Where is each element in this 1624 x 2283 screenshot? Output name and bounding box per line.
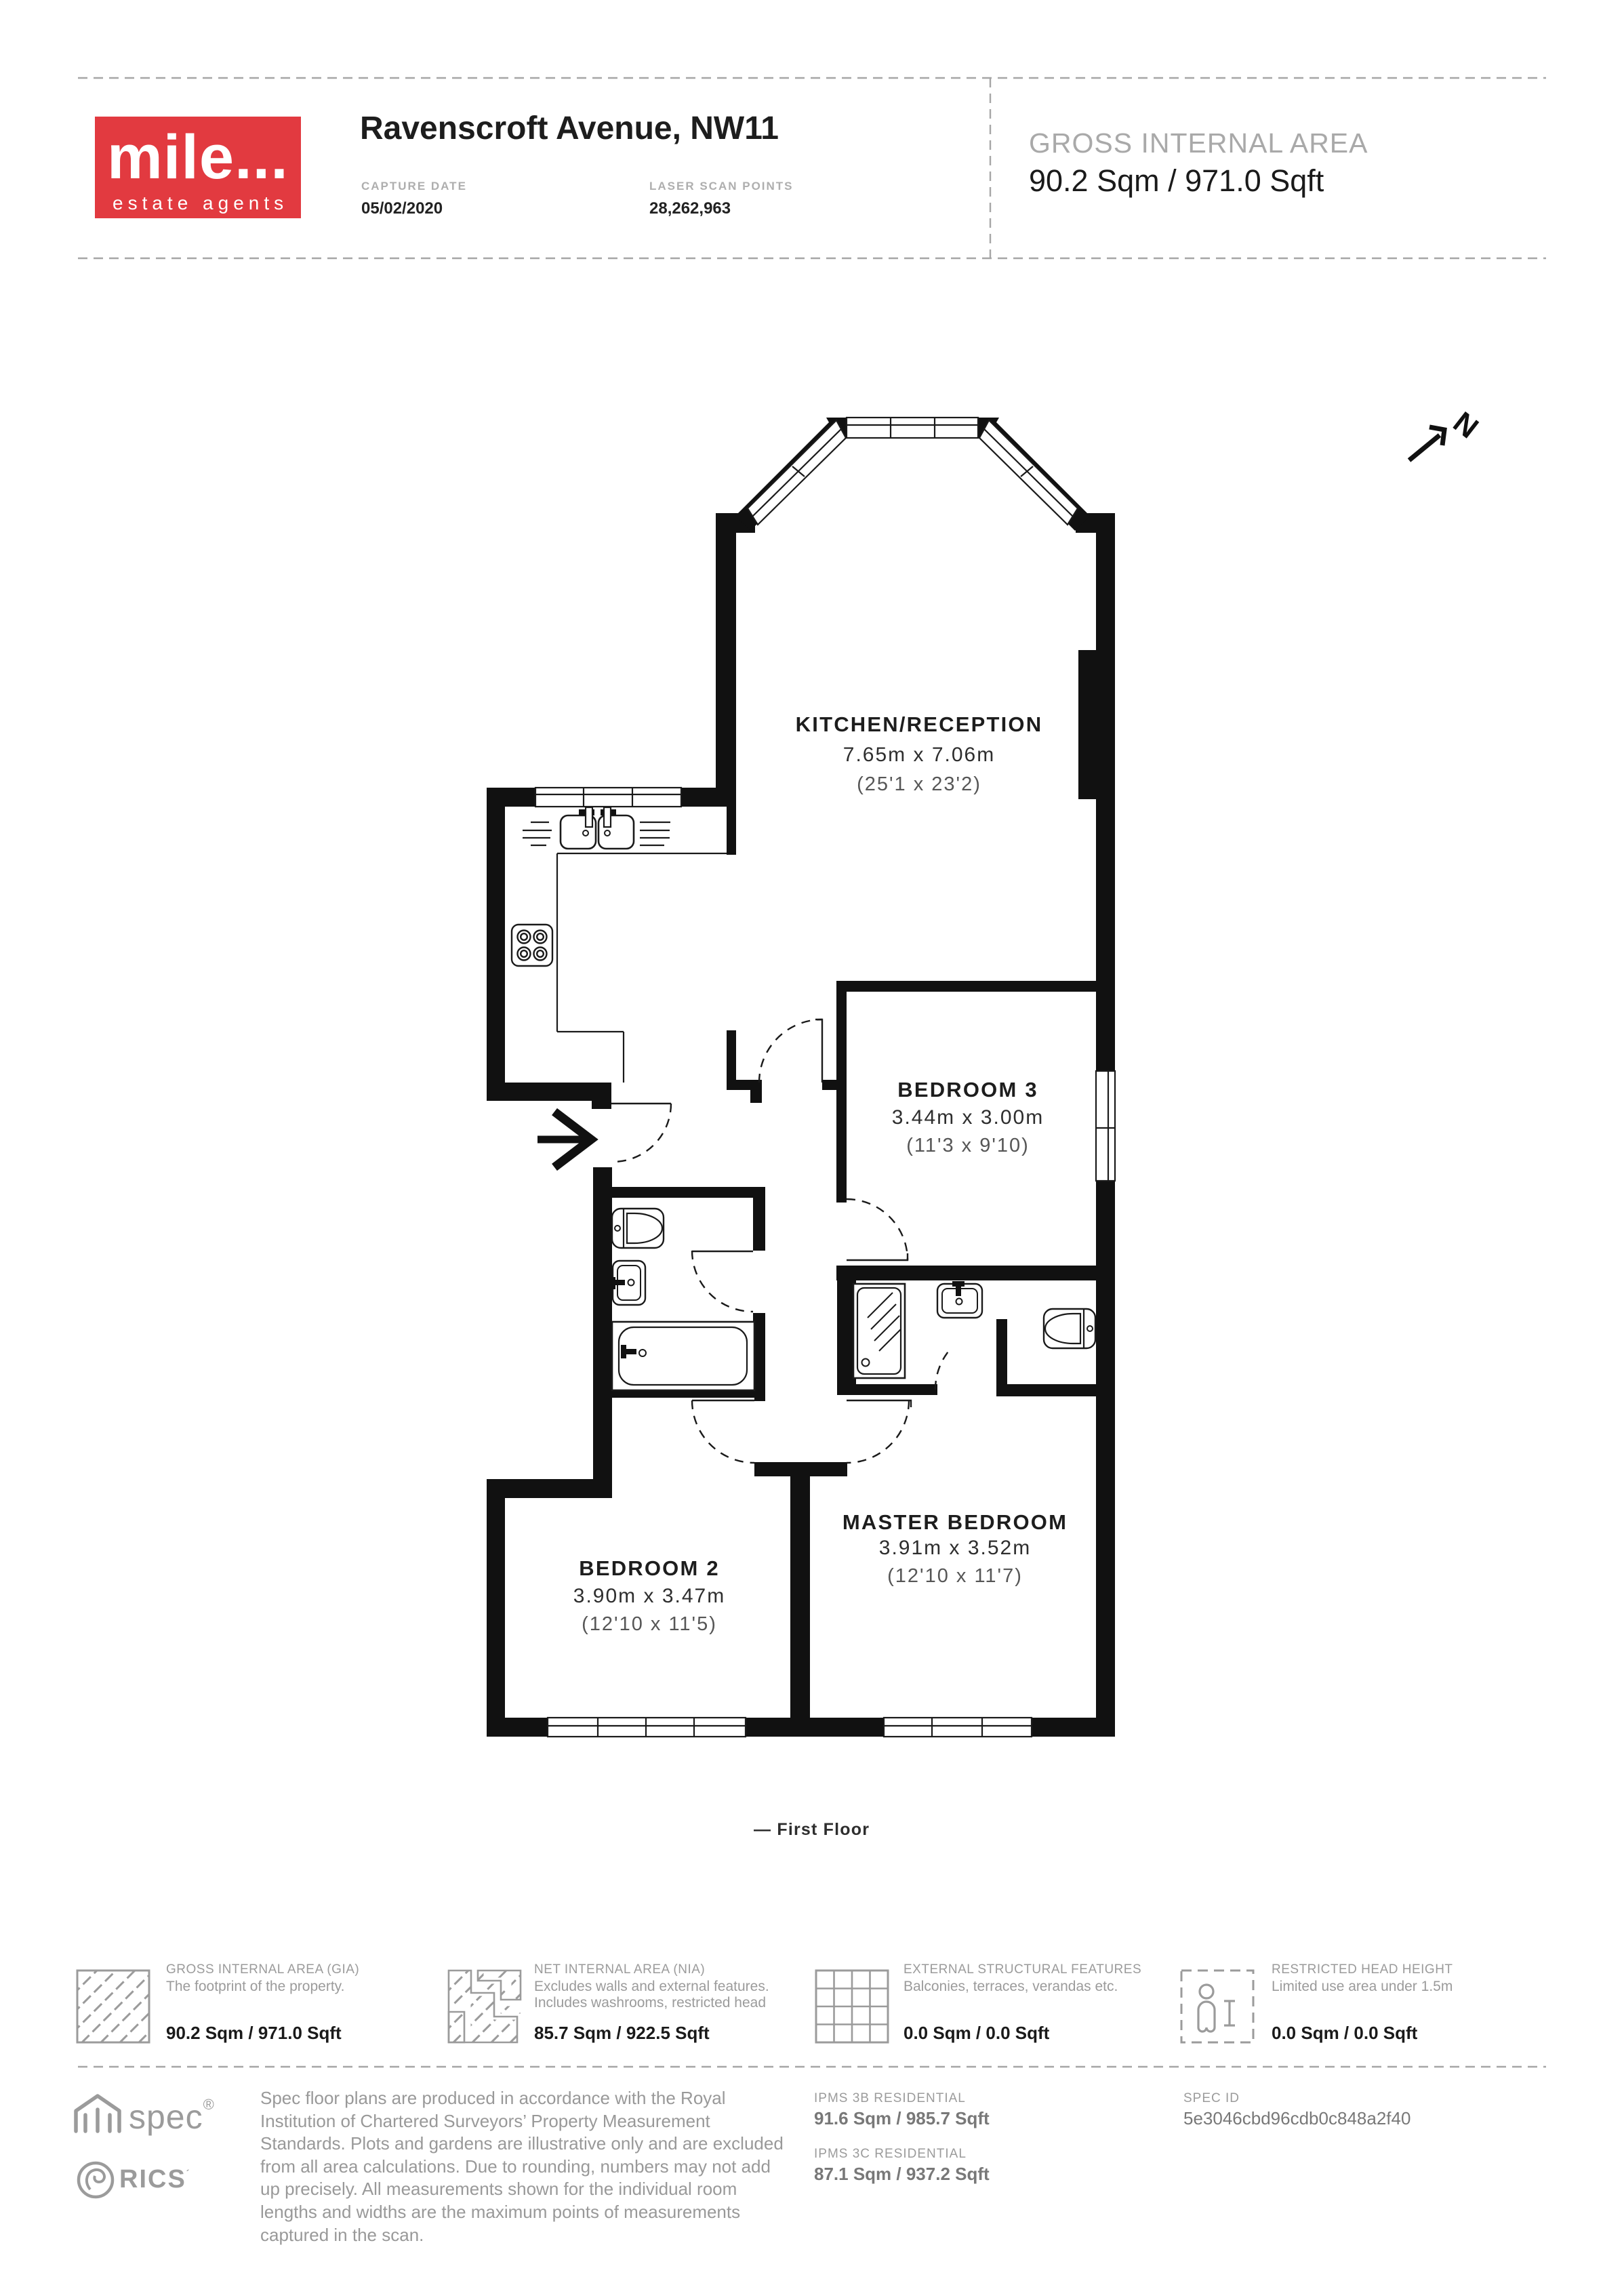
svg-text:N: N xyxy=(1447,405,1484,445)
